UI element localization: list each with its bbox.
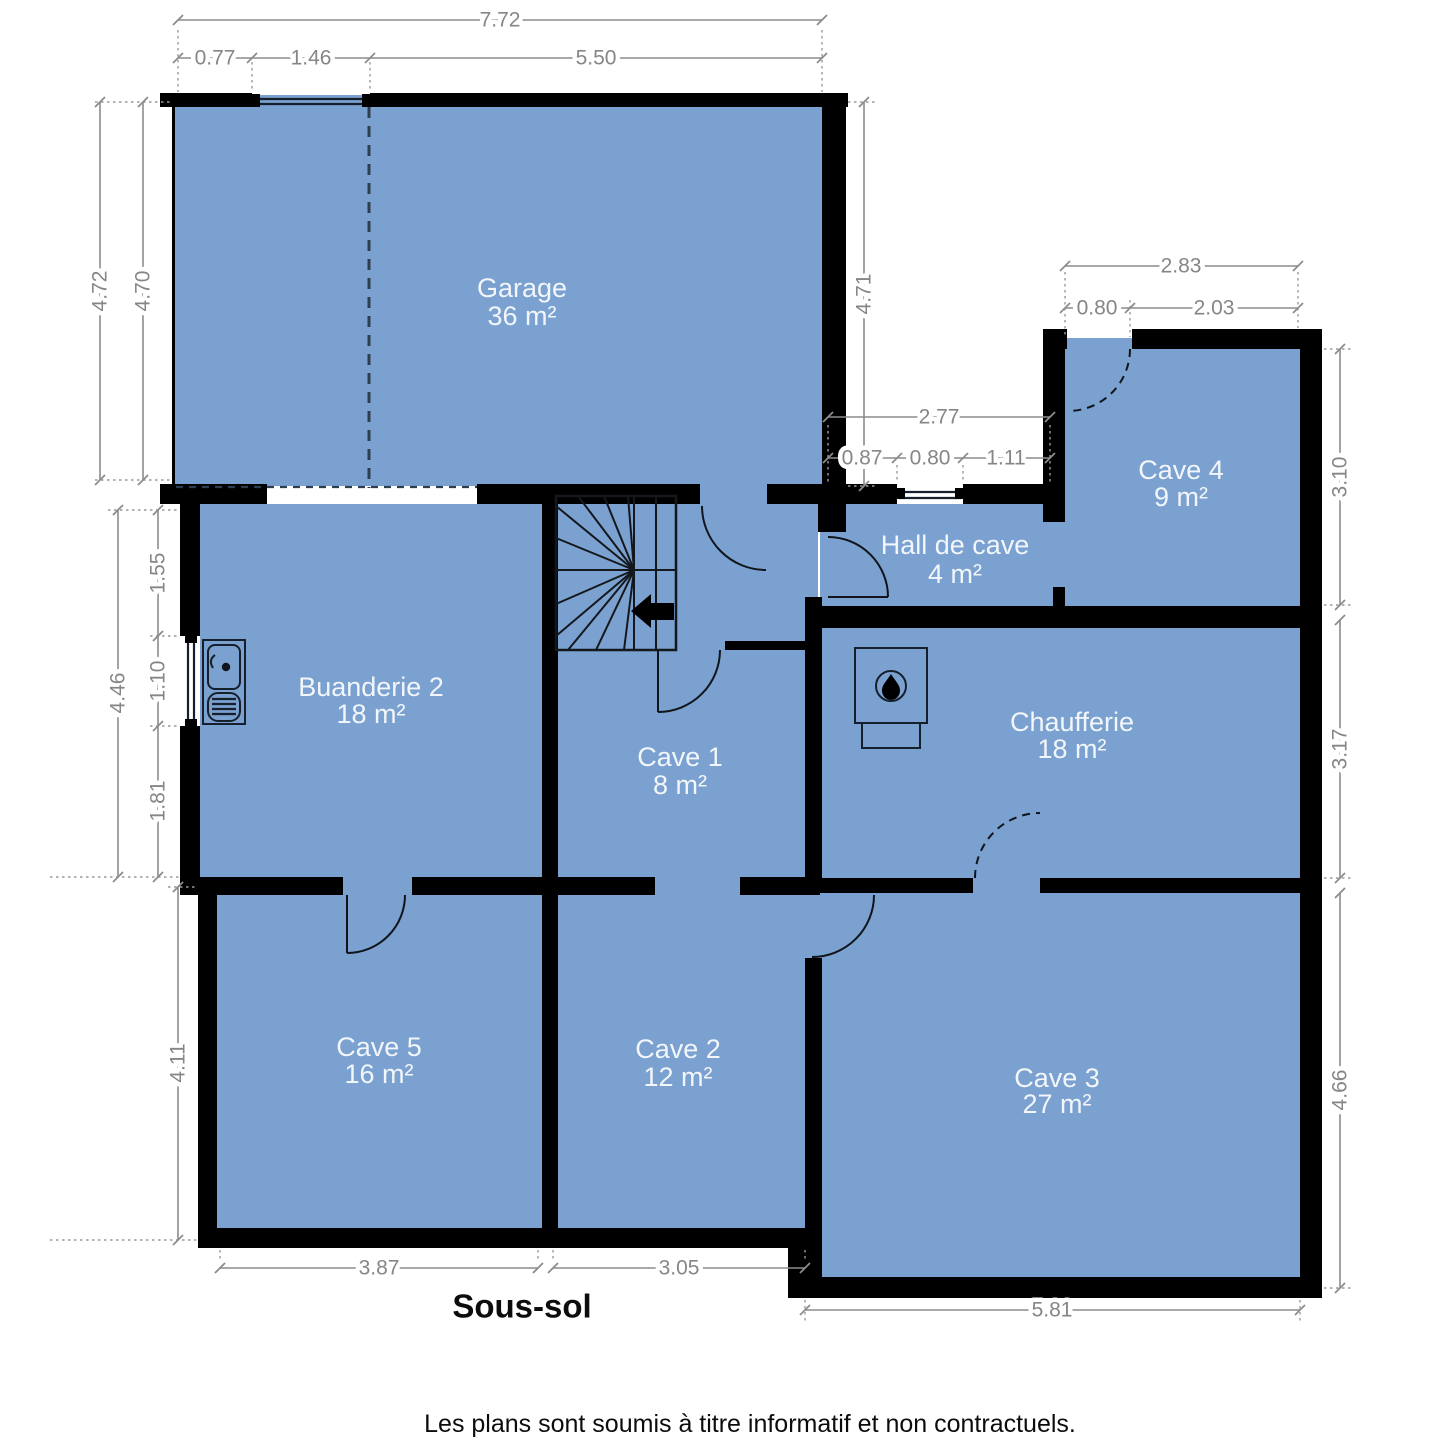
svg-text:2.77: 2.77 — [919, 406, 960, 429]
room-label-garage: Garage36 m² — [477, 273, 567, 331]
dim-right-a: 3.10 — [1329, 344, 1352, 610]
svg-text:18 m²: 18 m² — [336, 699, 405, 729]
wall-top-right — [370, 93, 848, 107]
wall-buanderie-left-lower — [180, 726, 200, 877]
wall-cave3-bottom — [788, 1277, 1322, 1298]
svg-text:2.83: 2.83 — [1161, 255, 1202, 278]
wall-hall-top-a — [846, 484, 897, 504]
room-fill-cave1 — [556, 502, 818, 880]
dim-top-total: 7.72 — [173, 9, 827, 32]
svg-text:1.10: 1.10 — [147, 661, 170, 702]
dim-hall-total: 2.77 — [823, 406, 1055, 429]
dim-left-mid-total: 4.46 — [107, 505, 130, 882]
dim-left-low: 4.11 — [167, 882, 190, 1245]
wall-buanderie-left-upper — [180, 504, 200, 636]
wall-bottom-west — [198, 1228, 822, 1248]
svg-text:1.11: 1.11 — [986, 447, 1025, 470]
svg-text:Cave 2: Cave 2 — [635, 1034, 721, 1064]
opening-hall-cave4 — [1053, 518, 1067, 590]
wall-hall-left-stub — [818, 504, 846, 532]
svg-text:0.87: 0.87 — [842, 447, 883, 470]
floor-plan-page: 7.72 0.77 1.46 5.50 4.72 4.70 4.71 2.83 … — [0, 0, 1440, 1440]
svg-text:8 m²: 8 m² — [653, 770, 707, 800]
floor-plan-drawing: 7.72 0.77 1.46 5.50 4.72 4.70 4.71 2.83 … — [0, 0, 1440, 1440]
wall-877-b — [412, 877, 655, 895]
svg-text:27 m²: 27 m² — [1022, 1089, 1091, 1119]
wall-chaufferie-cave3-a — [820, 878, 973, 893]
opening-buanderie-cave5 — [343, 877, 412, 895]
dim-bottom-b: 3.05 — [548, 1257, 810, 1280]
svg-text:5.81: 5.81 — [1032, 1299, 1073, 1322]
svg-text:7.72: 7.72 — [480, 9, 521, 32]
svg-text:4.71: 4.71 — [853, 274, 876, 315]
dim-left-mid-a: 1.55 — [147, 505, 170, 641]
svg-text:4.72: 4.72 — [89, 271, 112, 312]
wall-divider-cave5-cave2 — [542, 877, 558, 1248]
room-label-cave5: Cave 516 m² — [336, 1032, 422, 1089]
dim-hall-c: 1.11 — [963, 447, 1055, 470]
svg-text:3.17: 3.17 — [1329, 729, 1352, 770]
wall-mid-row-c — [767, 484, 846, 504]
wall-cave2-cave3 — [805, 958, 822, 1298]
room-label-cave2: Cave 212 m² — [635, 1034, 721, 1092]
svg-text:1.55: 1.55 — [147, 553, 170, 594]
svg-text:4.46: 4.46 — [107, 673, 130, 714]
svg-text:3.10: 3.10 — [1329, 457, 1352, 498]
svg-text:4.11: 4.11 — [167, 1043, 190, 1082]
wall-hall-chaufferie-band — [818, 606, 1322, 628]
dim-left-mid-c: 1.81 — [147, 726, 170, 882]
dim-bottom-c: 5.81 — [800, 1299, 1305, 1322]
svg-text:36 m²: 36 m² — [487, 301, 556, 331]
svg-text:12 m²: 12 m² — [643, 1062, 712, 1092]
svg-text:18 m²: 18 m² — [1037, 734, 1106, 764]
window-buanderie-left — [180, 636, 200, 726]
room-label-cave3: Cave 327 m² — [1014, 1063, 1100, 1119]
dim-cave4-a: 0.80 — [1060, 297, 1135, 320]
svg-text:1.81: 1.81 — [147, 781, 170, 822]
svg-text:9 m²: 9 m² — [1154, 482, 1208, 512]
wall-cave1-north-thin — [725, 641, 810, 650]
dim-cave4-total: 2.83 — [1060, 255, 1303, 278]
garage-door-strip — [267, 486, 477, 504]
dim-hall-b: 0.80 — [897, 447, 968, 470]
wall-chaufferie-left — [805, 597, 822, 883]
opening-chaufferie-cave3 — [973, 877, 1040, 893]
svg-text:0.77: 0.77 — [195, 47, 236, 70]
svg-text:0.80: 0.80 — [910, 447, 951, 470]
dim-right-b: 3.17 — [1329, 615, 1352, 883]
window-hall-top — [897, 486, 963, 504]
svg-text:Garage: Garage — [477, 273, 567, 303]
window-garage-top — [252, 94, 370, 107]
svg-text:5.50: 5.50 — [576, 47, 617, 70]
svg-text:16 m²: 16 m² — [344, 1059, 413, 1089]
dim-top-c: 5.50 — [370, 47, 827, 70]
dim-cave4-b: 2.03 — [1130, 297, 1303, 320]
disclaimer-text: Les plans sont soumis à titre informatif… — [424, 1410, 1076, 1438]
wall-mid-row-b — [477, 484, 700, 504]
svg-text:0.80: 0.80 — [1077, 297, 1118, 320]
wall-hall-top-b — [963, 484, 1055, 504]
floor-title: Sous-sol — [452, 1288, 591, 1325]
svg-text:2.03: 2.03 — [1194, 297, 1235, 320]
wall-cave4-top-b — [1132, 329, 1322, 349]
wall-right-outer — [1300, 329, 1322, 1298]
svg-text:3.87: 3.87 — [359, 1257, 400, 1280]
dim-top-a: 0.77 — [173, 47, 257, 70]
wall-garage-left-thin — [172, 98, 175, 490]
svg-text:Chaufferie: Chaufferie — [1010, 707, 1134, 737]
svg-text:Cave 5: Cave 5 — [336, 1032, 422, 1062]
svg-text:3.05: 3.05 — [659, 1257, 700, 1280]
dim-right-garage: 4.71 — [853, 97, 876, 491]
opening-cave1-cave2 — [655, 877, 740, 895]
wall-garage-right — [822, 93, 846, 506]
svg-text:4.70: 4.70 — [132, 271, 155, 312]
dim-left-outer: 4.72 — [89, 97, 112, 485]
dim-top-b: 1.46 — [252, 47, 375, 70]
wall-left-lower-outer — [198, 877, 217, 1248]
svg-text:Cave 1: Cave 1 — [637, 742, 723, 772]
svg-text:Hall de cave: Hall de cave — [881, 530, 1030, 560]
svg-text:1.46: 1.46 — [291, 47, 332, 70]
svg-text:Cave 4: Cave 4 — [1138, 455, 1224, 485]
opening-garage-cave1 — [700, 484, 767, 506]
dim-right-c: 4.66 — [1329, 888, 1352, 1293]
svg-text:Buanderie 2: Buanderie 2 — [298, 672, 444, 702]
svg-text:4 m²: 4 m² — [928, 559, 982, 589]
wall-cave4-left — [1043, 329, 1065, 522]
wall-chaufferie-cave3-b — [1040, 878, 1322, 893]
wall-877-c — [740, 877, 820, 895]
dim-left-inner: 4.70 — [132, 97, 155, 485]
dim-bottom-a: 3.87 — [215, 1257, 543, 1280]
dim-left-mid-b: 1.10 — [147, 636, 170, 731]
svg-text:4.66: 4.66 — [1329, 1070, 1352, 1111]
